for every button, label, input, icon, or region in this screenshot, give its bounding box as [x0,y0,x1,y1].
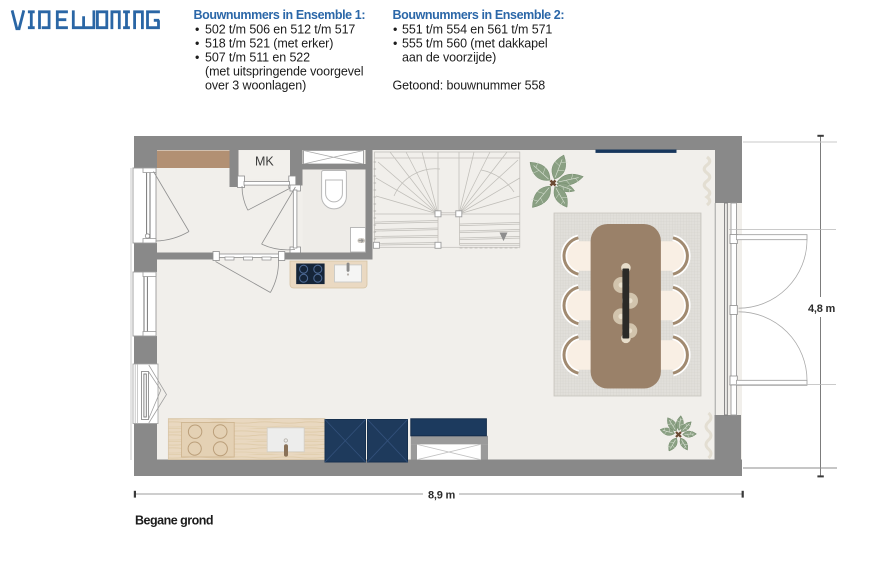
svg-text:4,8 m: 4,8 m [808,303,836,315]
svg-text:507 t/m 511 en 522: 507 t/m 511 en 522 [205,51,310,65]
svg-text:Getoond: bouwnummer 558: Getoond: bouwnummer 558 [393,79,546,93]
svg-text:over 3 woonlagen): over 3 woonlagen) [205,79,306,93]
svg-text:502 t/m 506 en 512 t/m 517: 502 t/m 506 en 512 t/m 517 [205,23,355,37]
svg-text:•: • [195,51,199,65]
svg-text:•: • [393,37,397,51]
svg-text:•: • [393,23,397,37]
svg-text:aan de voorzijde): aan de voorzijde) [402,51,496,65]
svg-text:•: • [195,37,199,51]
svg-text:551 t/m 554 en 561 t/m 571: 551 t/m 554 en 561 t/m 571 [402,23,552,37]
svg-text:Begane grond: Begane grond [135,514,213,528]
svg-text:Bouwnummers in Ensemble 1:: Bouwnummers in Ensemble 1: [194,8,366,22]
svg-text:MK: MK [255,155,274,169]
svg-text:•: • [195,23,199,37]
svg-text:Bouwnummers in Ensemble 2:: Bouwnummers in Ensemble 2: [393,8,565,22]
svg-text:(met uitspringende voorgevel: (met uitspringende voorgevel [205,65,363,79]
svg-text:555 t/m 560 (met dakkapel: 555 t/m 560 (met dakkapel [402,37,548,51]
svg-text:518 t/m 521 (met erker): 518 t/m 521 (met erker) [205,37,333,51]
svg-text:8,9 m: 8,9 m [428,490,456,502]
